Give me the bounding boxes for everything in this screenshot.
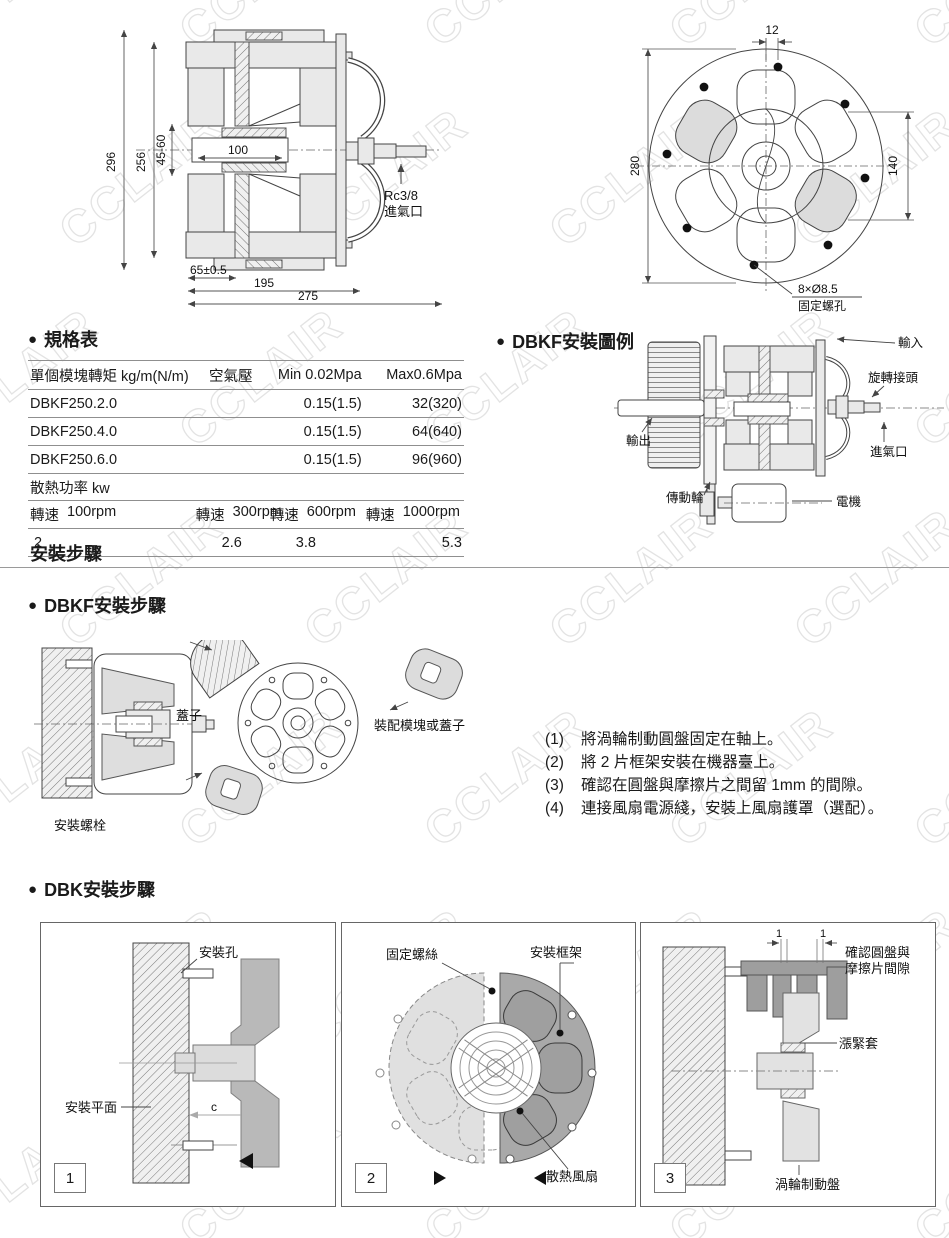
max-cell: 96(960): [364, 452, 464, 468]
dim-256: 256: [134, 152, 148, 172]
step-text: 將 2 片框架安裝在機器臺上。: [581, 751, 784, 774]
input-label: 輸入: [898, 335, 924, 350]
speed-label: 轉速: [196, 504, 225, 525]
dim-100: 100: [228, 143, 248, 157]
install-steps-section-title: 安裝步驟: [30, 540, 102, 566]
spec-section-title: ● 規格表: [28, 326, 98, 352]
min-cell: 0.15(1.5): [268, 396, 364, 412]
panel1-drawing: c 安裝孔 安裝平面: [41, 923, 333, 1204]
dbkf-steps-title: ● DBKF安裝步驟: [28, 592, 166, 618]
speed-label: 轉速: [270, 504, 299, 525]
step-line: (4) 連接風扇電源綫，安裝上風扇護罩（選配）。: [545, 797, 883, 820]
speed-label: 轉速: [30, 504, 59, 525]
section-divider: [0, 567, 949, 568]
dim-65: 65±0.5: [190, 263, 227, 277]
bolt-holes-label-line2: 固定螺孔: [798, 298, 846, 313]
drive-wheel-label: 傳動輪: [666, 490, 704, 505]
table-row: DBKF250.4.0 0.15(1.5) 64(640): [28, 418, 464, 446]
check-gap-label-line2: 摩擦片間隙: [845, 961, 910, 976]
speed-value: 2.6: [194, 535, 268, 551]
bullet-icon: ●: [28, 332, 37, 347]
check-gap-label-line1: 確認圓盤與: [845, 945, 910, 960]
table-row: DBKF250.2.0 0.15(1.5) 32(320): [28, 390, 464, 418]
sleeve-label: 漲緊套: [839, 1036, 878, 1051]
bullet-icon: ●: [28, 598, 37, 613]
col-header-max: Max0.6Mpa: [364, 367, 464, 383]
step-line: (2) 將 2 片框架安裝在機器臺上。: [545, 751, 883, 774]
table-row: DBKF250.6.0 0.15(1.5) 96(960): [28, 446, 464, 474]
col-header-torque: 單個模塊轉矩 kg/m(N/m): [28, 365, 194, 386]
dbk-steps-title: ● DBK安裝步驟: [28, 876, 155, 902]
dim-45-60: 45-60: [154, 134, 168, 165]
turbo-disc-label: 渦輪制動盤: [775, 1177, 840, 1192]
step-text: 確認在圓盤與摩擦片之間留 1mm 的間隙。: [581, 774, 872, 797]
air-inlet-label: 進氣口: [870, 445, 908, 459]
dbk-panel-3: 1 1 確認圓盤與 摩擦片間隙 漲緊套 渦輪制動盤 3: [640, 922, 936, 1207]
panel3-drawing: 1 1 確認圓盤與 摩擦片間隙 漲緊套 渦輪制動盤: [641, 923, 933, 1204]
power-row: 散熱功率 kw: [28, 474, 464, 501]
step-number: (2): [545, 751, 581, 774]
step-number: (4): [545, 797, 581, 820]
min-cell: 0.15(1.5): [268, 424, 364, 440]
panel-number: 2: [355, 1163, 387, 1193]
dbk-steps-title-text: DBK安裝步驟: [44, 876, 155, 902]
cooling-fan-label: 散熱風扇: [546, 1169, 598, 1184]
step-line: (3) 確認在圓盤與摩擦片之間留 1mm 的間隙。: [545, 774, 883, 797]
rotary-joint-label: 旋轉接頭: [868, 370, 919, 385]
speed-rpm: 1000rpm: [403, 504, 460, 525]
speed-value: 3.8: [268, 535, 364, 551]
bullet-icon: ●: [496, 334, 505, 349]
model-cell: DBKF250.2.0: [28, 396, 194, 412]
gap-tick-right: 1: [820, 928, 826, 940]
power-label: 散熱功率 kw: [28, 477, 464, 498]
gap-tick-left: 1: [776, 928, 782, 940]
module-or-cover-label: 裝配模塊或蓋子: [374, 718, 465, 733]
speed-value: 5.3: [364, 535, 464, 551]
dim-140: 140: [886, 156, 900, 176]
dbk-panel-2: 固定螺絲 安裝框架 散熱風扇 2: [341, 922, 636, 1207]
model-cell: DBKF250.4.0: [28, 424, 194, 440]
mount-frame-label: 安裝框架: [530, 945, 582, 960]
catalog-page: CCLAIRCCLAIRCCLAIRCCLAIRCCLAIRCCLAIRCCLA…: [0, 0, 949, 1238]
watermark-text: CCLAIR: [904, 697, 949, 858]
speed-label: 轉速: [366, 504, 395, 525]
panel2-drawing: 固定螺絲 安裝框架 散熱風扇: [342, 923, 633, 1204]
dbkf-steps-list: (1) 將渦輪制動圓盤固定在軸上。 (2) 將 2 片框架安裝在機器臺上。 (3…: [545, 728, 883, 820]
step-line: (1) 將渦輪制動圓盤固定在軸上。: [545, 728, 883, 751]
step-number: (3): [545, 774, 581, 797]
mount-surface-label: 安裝平面: [65, 1100, 117, 1115]
col-header-min: Min 0.02Mpa: [268, 367, 364, 383]
cover-label: 蓋子: [176, 708, 202, 723]
speed-rpm: 100rpm: [67, 504, 116, 525]
spec-table-header: 單個模塊轉矩 kg/m(N/m) 空氣壓 Min 0.02Mpa Max0.6M…: [28, 360, 464, 390]
dim-275: 275: [298, 289, 318, 303]
step-text: 連接風扇電源綫，安裝上風扇護罩（選配）。: [581, 797, 883, 820]
bolt-holes-label-line1: 8×Ø8.5: [798, 282, 838, 296]
step-number: (1): [545, 728, 581, 751]
max-cell: 32(320): [364, 396, 464, 412]
dim-12: 12: [765, 23, 779, 37]
air-port-label-line1: Rc3/8: [384, 188, 418, 203]
min-cell: 0.15(1.5): [268, 452, 364, 468]
gap-dim-label: c: [211, 1100, 217, 1114]
dim-195: 195: [254, 276, 274, 290]
output-label: 輸出: [626, 433, 651, 448]
panel-number: 1: [54, 1163, 86, 1193]
spec-title-text: 規格表: [44, 326, 98, 352]
max-cell: 64(640): [364, 424, 464, 440]
install-example-drawing: 輸入 旋轉接頭 進氣口 輸出 傳動輪 電機: [612, 330, 947, 530]
dbkf-steps-drawing: 安裝螺栓 蓋子 裝配模塊或蓋子: [30, 640, 530, 855]
dim-296: 296: [104, 152, 118, 172]
mount-hole-label: 安裝孔: [199, 945, 238, 960]
speed-header-row: 轉速100rpm 轉速300rpm 轉速600rpm 轉速1000rpm: [28, 501, 464, 529]
dbk-panel-1: c 安裝孔 安裝平面 1: [40, 922, 336, 1207]
air-port-label-line2: 進氣口: [384, 204, 423, 219]
dbkf-steps-title-text: DBKF安裝步驟: [44, 592, 166, 618]
panel-number: 3: [654, 1163, 686, 1193]
motor-label: 電機: [836, 494, 862, 509]
dim-280: 280: [628, 156, 642, 176]
spec-table: 單個模塊轉矩 kg/m(N/m) 空氣壓 Min 0.02Mpa Max0.6M…: [28, 360, 464, 557]
step-text: 將渦輪制動圓盤固定在軸上。: [581, 728, 783, 751]
watermark-text: CCLAIR: [0, 0, 108, 57]
section-view-drawing: 296 256 45-60 100 65±0.5 195 275 Rc3/8 進…: [96, 12, 456, 307]
fix-screw-label: 固定螺絲: [386, 947, 438, 962]
bullet-icon: ●: [28, 882, 37, 897]
front-view-drawing: 12 280 140 8×Ø8.5 固定螺孔: [596, 8, 941, 313]
mount-bolt-label: 安裝螺栓: [54, 818, 106, 833]
col-header-air-pressure: 空氣壓: [194, 365, 268, 386]
speed-rpm: 600rpm: [307, 504, 356, 525]
model-cell: DBKF250.6.0: [28, 452, 194, 468]
